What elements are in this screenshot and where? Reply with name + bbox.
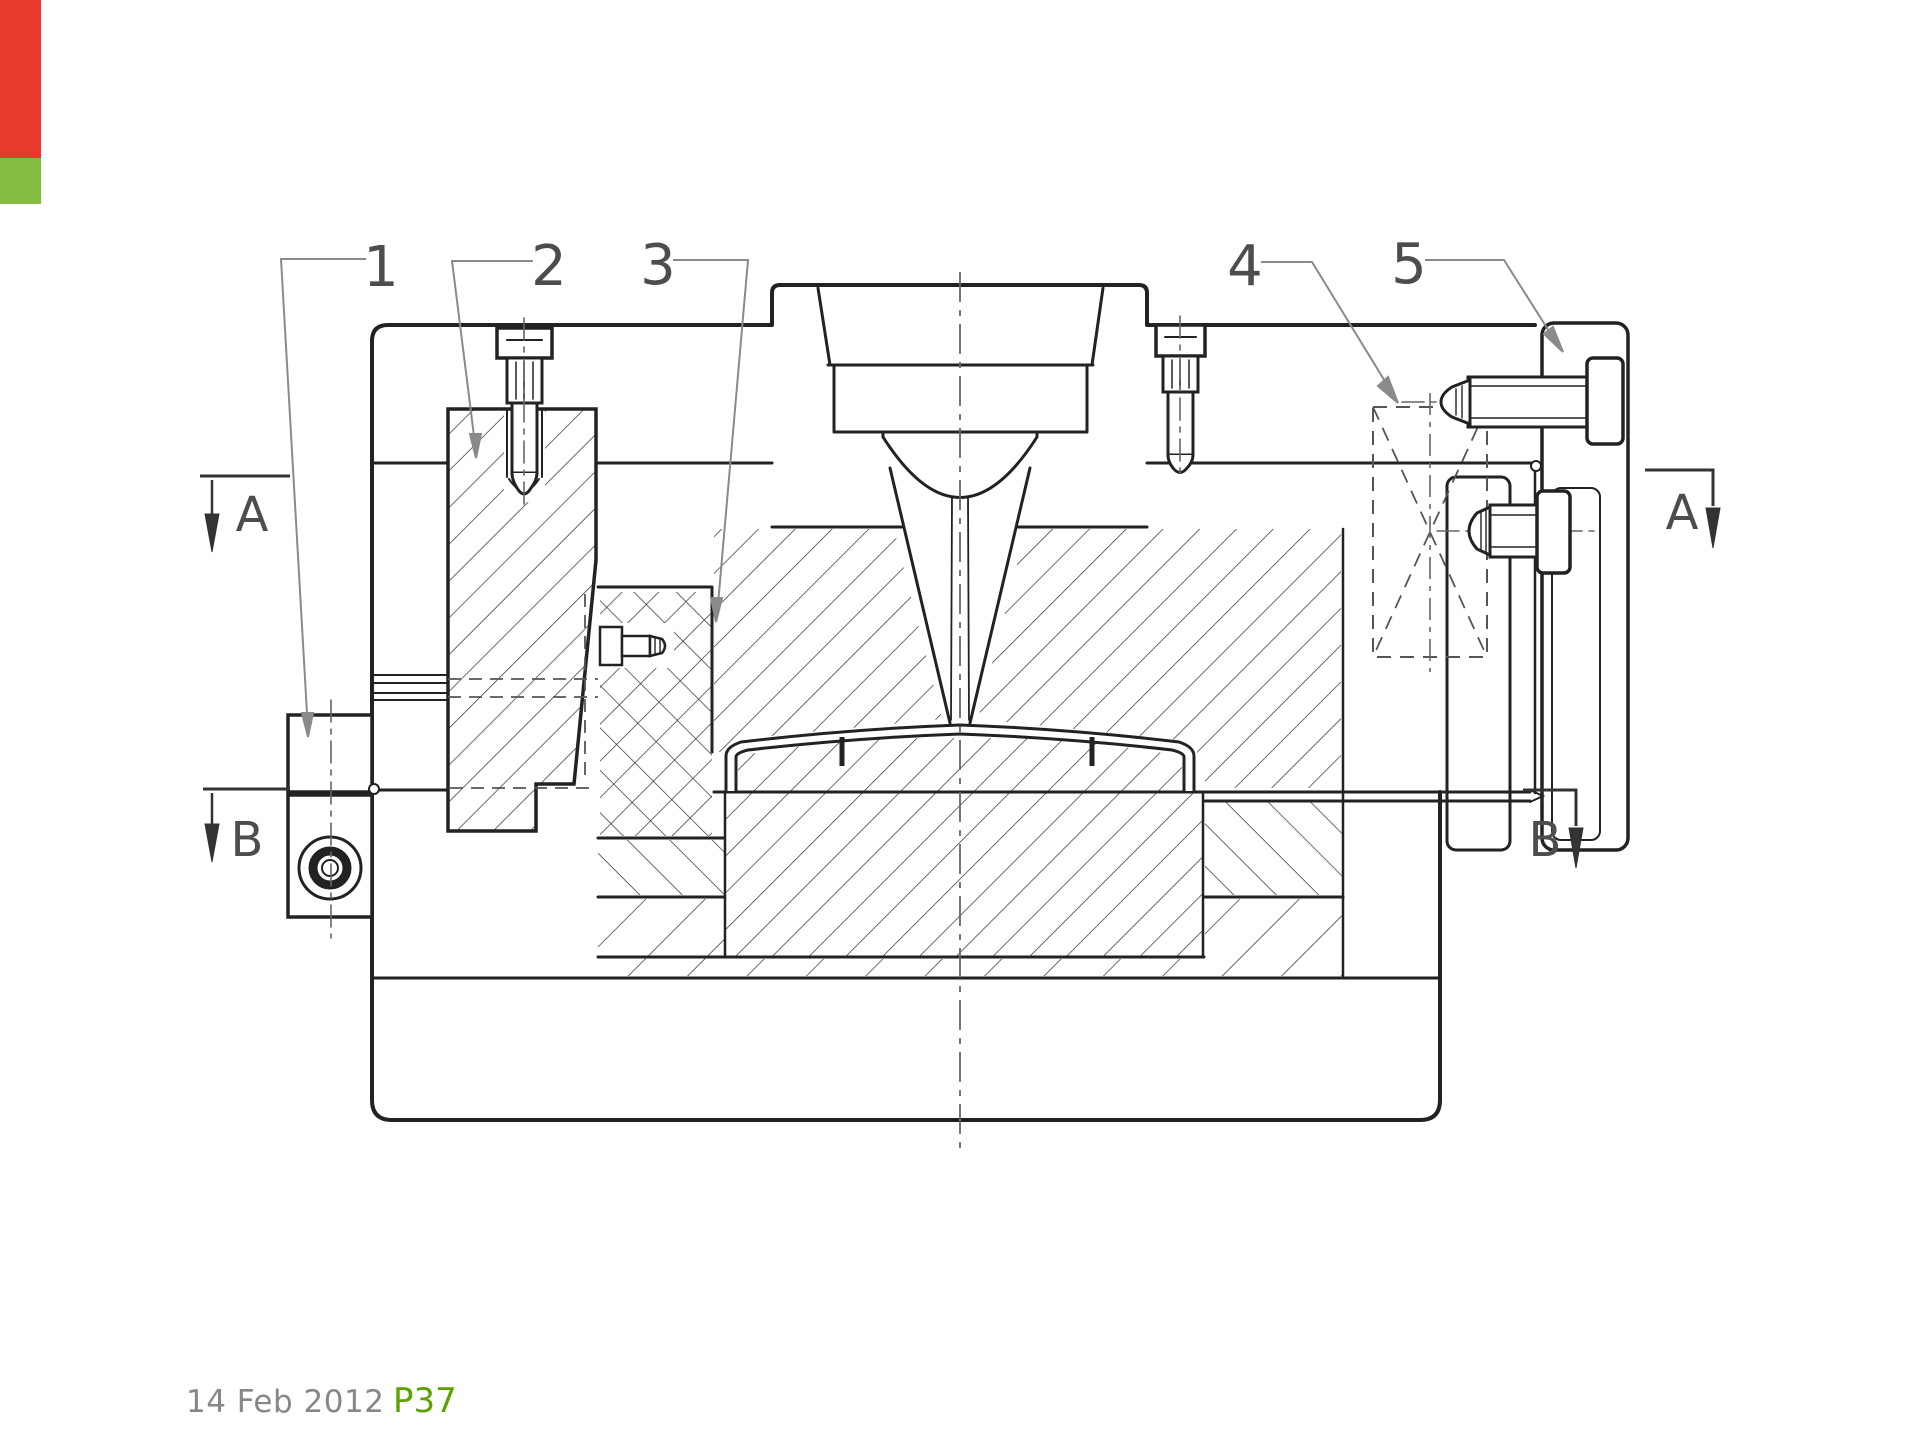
- stop-bolt-lower: [1437, 491, 1600, 573]
- stop-bolt-upper: [1402, 358, 1623, 444]
- section-letter-b-right: B: [1529, 812, 1562, 868]
- balloon-3: 3: [640, 233, 676, 298]
- section-letter-a-right: A: [1666, 485, 1699, 541]
- balloon-5: 5: [1391, 232, 1427, 297]
- cap-screw-right: [1156, 316, 1205, 480]
- mould-section-drawing: 1 2 3 4 5 A B A B: [0, 0, 1920, 1440]
- balloon-2: 2: [531, 234, 567, 299]
- section-letter-b-left: B: [231, 812, 264, 868]
- date-text: 14 Feb 2012: [186, 1384, 384, 1420]
- balloon-4: 4: [1227, 234, 1263, 299]
- section-letter-a-left: A: [236, 487, 269, 543]
- page-reference: P37: [393, 1381, 457, 1421]
- balloon-numbers: 1 2 3 4 5: [363, 232, 1427, 300]
- left-clamp-and-nut: [288, 700, 372, 938]
- balloon-1: 1: [363, 235, 399, 300]
- slide-page: 1 2 3 4 5 A B A B: [0, 0, 1920, 1440]
